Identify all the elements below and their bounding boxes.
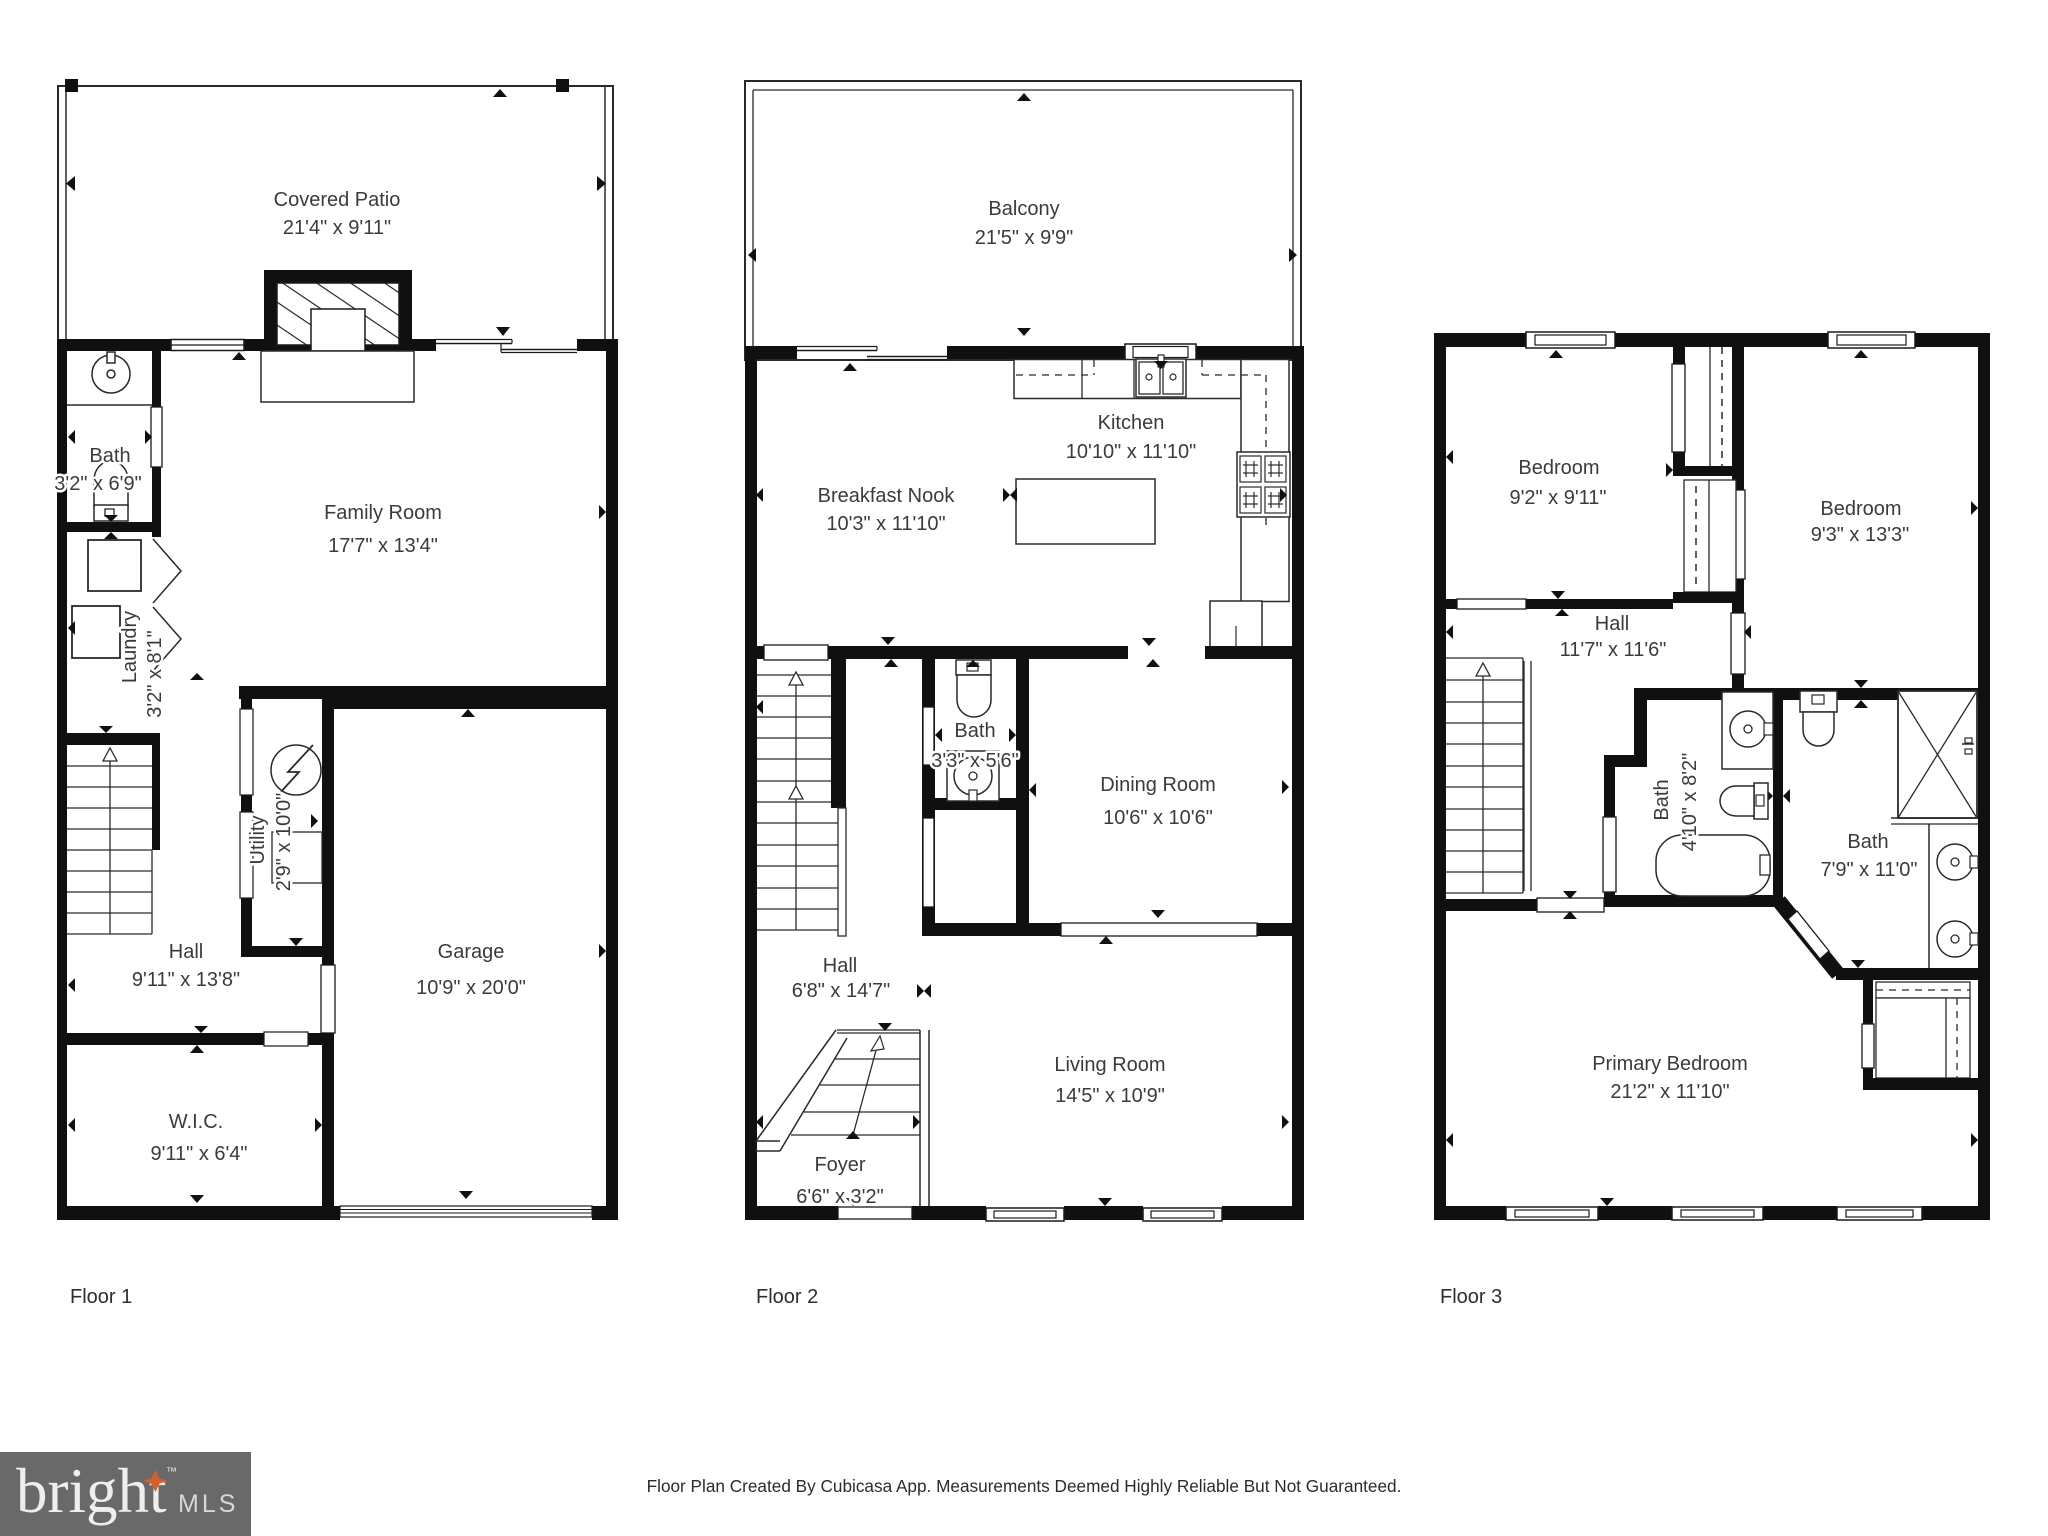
svg-text:Balcony: Balcony xyxy=(988,198,1059,220)
svg-text:Floor Plan Created By Cubicasa: Floor Plan Created By Cubicasa App. Meas… xyxy=(647,1476,1402,1496)
svg-text:Floor 1: Floor 1 xyxy=(70,1286,132,1308)
svg-text:3'2" x 6'9": 3'2" x 6'9" xyxy=(54,473,141,495)
svg-text:MLS: MLS xyxy=(178,1490,238,1518)
svg-text:Living Room: Living Room xyxy=(1054,1054,1165,1076)
svg-text:6'8" x 14'7": 6'8" x 14'7" xyxy=(792,980,891,1002)
svg-text:Hall: Hall xyxy=(1595,613,1629,635)
svg-text:Laundry: Laundry xyxy=(119,611,141,683)
svg-text:10'3" x 11'10": 10'3" x 11'10" xyxy=(826,513,945,535)
svg-text:3'3" x 5'6": 3'3" x 5'6" xyxy=(931,750,1018,772)
svg-text:Bath: Bath xyxy=(1651,779,1673,820)
svg-text:17'7" x 13'4": 17'7" x 13'4" xyxy=(328,535,438,557)
svg-text:11'7" x 11'6": 11'7" x 11'6" xyxy=(1560,639,1667,661)
svg-text:Kitchen: Kitchen xyxy=(1098,412,1165,434)
svg-text:9'11" x 13'8": 9'11" x 13'8" xyxy=(132,969,240,991)
svg-text:4'10" x 8'2": 4'10" x 8'2" xyxy=(1679,753,1701,852)
svg-text:Garage: Garage xyxy=(438,941,505,963)
svg-text:21'2" x 11'10": 21'2" x 11'10" xyxy=(1610,1081,1729,1103)
svg-text:Bath: Bath xyxy=(954,720,995,742)
svg-text:Bath: Bath xyxy=(89,445,130,467)
svg-text:3'2" x 8'1": 3'2" x 8'1" xyxy=(144,630,166,717)
svg-text:W.I.C.: W.I.C. xyxy=(169,1111,223,1133)
svg-text:21'4" x 9'11": 21'4" x 9'11" xyxy=(283,217,391,239)
svg-text:10'10" x 11'10": 10'10" x 11'10" xyxy=(1066,441,1196,463)
svg-text:Bath: Bath xyxy=(1847,831,1888,853)
svg-text:™: ™ xyxy=(166,1466,177,1478)
svg-text:9'2" x 9'11": 9'2" x 9'11" xyxy=(1509,487,1606,509)
svg-text:7'9" x 11'0": 7'9" x 11'0" xyxy=(1820,859,1917,881)
svg-text:10'6" x 10'6": 10'6" x 10'6" xyxy=(1103,807,1213,829)
svg-text:9'3" x 13'3": 9'3" x 13'3" xyxy=(1811,524,1910,546)
svg-text:Covered Patio: Covered Patio xyxy=(274,189,401,211)
svg-text:Floor 2: Floor 2 xyxy=(756,1286,818,1308)
svg-text:Floor 3: Floor 3 xyxy=(1440,1286,1502,1308)
svg-text:Hall: Hall xyxy=(169,941,203,963)
svg-text:Hall: Hall xyxy=(823,955,857,977)
svg-text:21'5" x 9'9": 21'5" x 9'9" xyxy=(975,227,1074,249)
svg-text:2'9" x 10'0": 2'9" x 10'0" xyxy=(273,793,295,892)
svg-text:Utility: Utility xyxy=(247,816,269,865)
svg-text:14'5" x 10'9": 14'5" x 10'9" xyxy=(1055,1085,1165,1107)
svg-text:Family Room: Family Room xyxy=(324,502,442,524)
svg-text:Primary Bedroom: Primary Bedroom xyxy=(1592,1053,1748,1075)
svg-text:Dining Room: Dining Room xyxy=(1100,774,1216,796)
svg-text:Bedroom: Bedroom xyxy=(1820,498,1901,520)
svg-text:10'9" x 20'0": 10'9" x 20'0" xyxy=(416,977,526,999)
svg-text:Bedroom: Bedroom xyxy=(1518,457,1599,479)
svg-text:Breakfast Nook: Breakfast Nook xyxy=(818,485,956,507)
svg-text:9'11" x 6'4": 9'11" x 6'4" xyxy=(150,1143,247,1165)
svg-text:bright: bright xyxy=(16,1456,167,1526)
svg-text:Foyer: Foyer xyxy=(814,1154,865,1176)
svg-text:6'6" x 3'2": 6'6" x 3'2" xyxy=(796,1186,883,1208)
